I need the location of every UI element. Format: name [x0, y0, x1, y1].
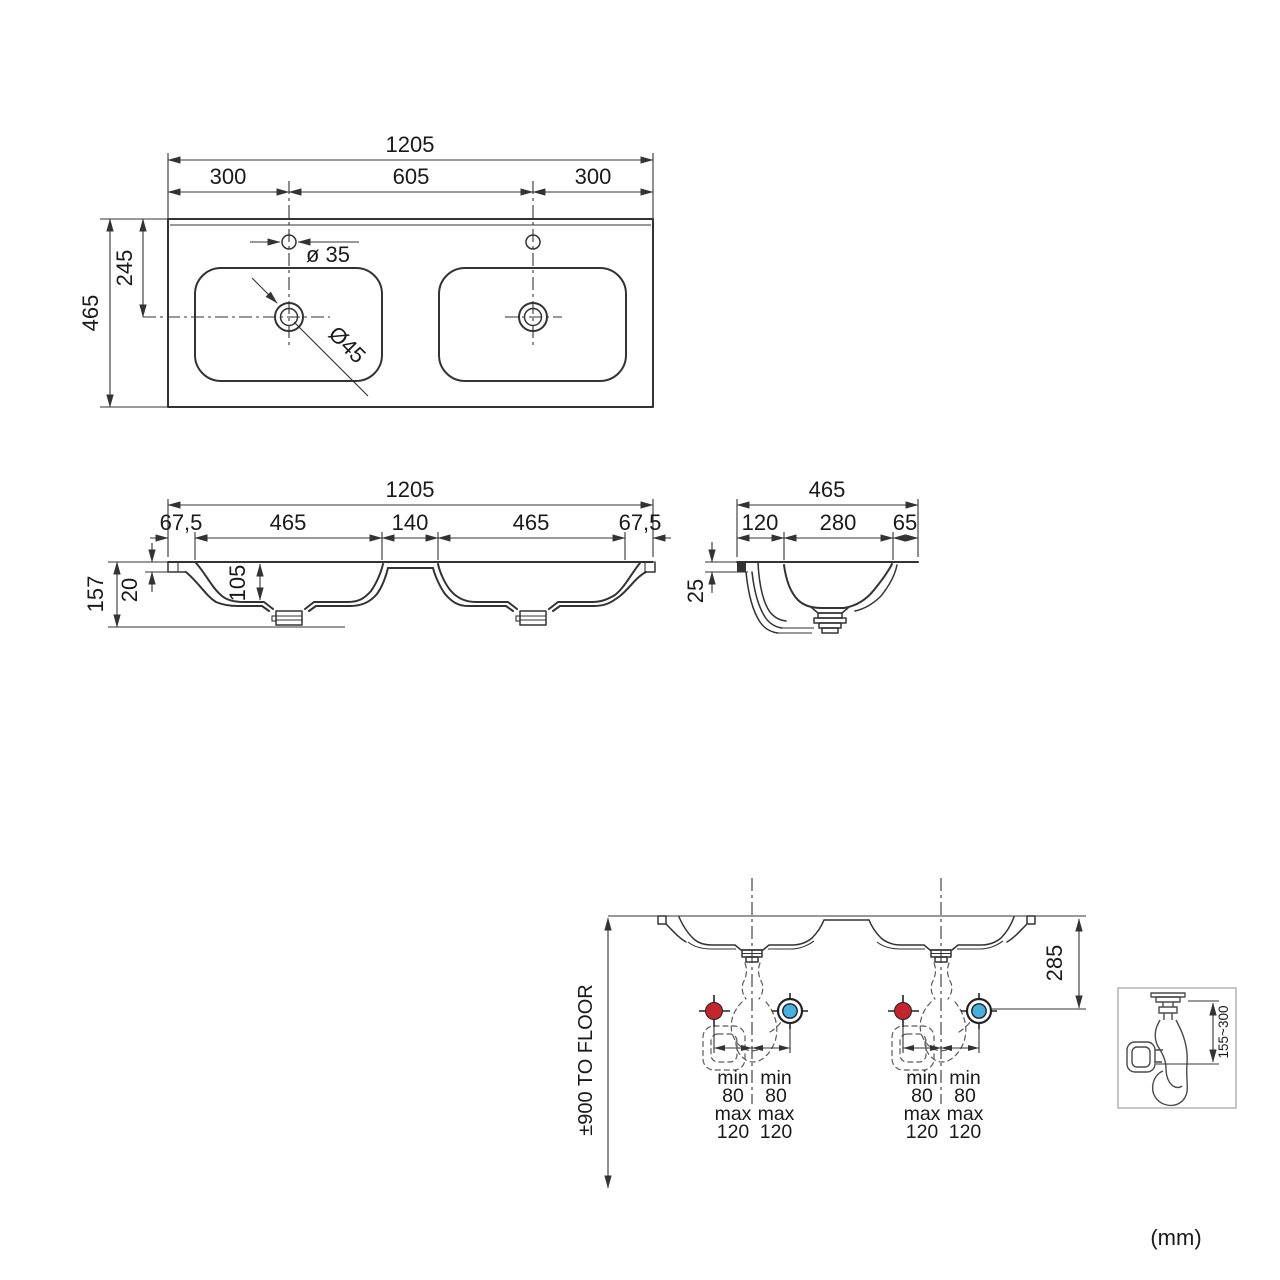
- right-basin-outer-shell-right: [553, 572, 646, 611]
- dim-hole-spacing: 605: [393, 164, 430, 189]
- technical-drawing-page: 1205 300 605 300 465 245 ø 35 Ø45 1205: [0, 0, 1280, 1280]
- dim-overall-depth: 465: [78, 295, 103, 332]
- right-trap-tailpiece-dashed: [931, 963, 935, 999]
- side-section-view: 465 120 280 65 25: [683, 477, 918, 633]
- units-note: (mm): [1150, 1225, 1201, 1250]
- installation-view: ±900 TO FLOOR: [575, 878, 1086, 1188]
- left-basin-outer-shell-right: [309, 568, 388, 611]
- trap-detail-box: 155~300: [1118, 988, 1236, 1108]
- front-right-drain-fitting: [516, 611, 546, 625]
- left-trap-tailpiece-dashed: [742, 963, 746, 999]
- front-section-view: 1205 67,5 465 140 465 67,5: [83, 477, 671, 627]
- countertop-outline: [168, 219, 653, 407]
- arrowhead: [779, 1045, 790, 1051]
- dim-drain-offset: 245: [112, 250, 137, 287]
- front-right-tab: [645, 562, 655, 572]
- max-value: 120: [949, 1121, 982, 1143]
- right-basin-installation: min 80 max 120 min 80 max 120: [888, 878, 997, 1143]
- front-left-tab: [168, 562, 186, 572]
- drain-dia-pointer: [252, 278, 277, 303]
- dim-floor-height-note: ±900 TO FLOOR: [575, 984, 597, 1135]
- dim-right-hole-offset: 300: [575, 164, 612, 189]
- right-basin-inner-surface-right: [549, 563, 640, 609]
- side-left-tab: [737, 562, 746, 572]
- side-basin-inner-back: [844, 564, 892, 608]
- dim-right-rim: 67,5: [619, 510, 662, 535]
- dim-countertop-thickness: 20: [117, 578, 142, 602]
- side-front-apron-mid: [752, 572, 782, 628]
- dim-trap-adjust-range: 155~300: [1216, 1006, 1231, 1059]
- right-basin-inner-surface: [438, 564, 517, 609]
- left-basin-supply-offset-labels: min 80 max 120 min 80 max 120: [715, 1067, 795, 1143]
- dim-left-hole-offset: 300: [210, 164, 247, 189]
- arrowhead: [903, 1045, 914, 1051]
- side-basin-inner-front: [784, 565, 844, 608]
- dim-side-overall-depth: 465: [809, 477, 846, 502]
- dim-basin-depth: 105: [225, 565, 250, 602]
- install-left-outer-wall: [666, 924, 686, 942]
- right-basin-outer-shell: [433, 568, 513, 611]
- dim-front-rim: 120: [742, 510, 779, 535]
- install-right-tab: [1027, 916, 1035, 924]
- dim-basin-opening: 280: [820, 510, 857, 535]
- top-plan-view: 1205 300 605 300 465 245 ø 35 Ø45: [78, 132, 653, 407]
- dim-overall-width: 1205: [386, 132, 435, 157]
- max-value: 120: [906, 1121, 939, 1143]
- install-left-tab: [658, 916, 666, 924]
- left-basin-inner-surface-right: [305, 564, 383, 609]
- dim-overall-height: 157: [83, 576, 108, 613]
- arrowhead: [968, 1045, 979, 1051]
- left-trap-tailpiece-dashed: [759, 963, 763, 999]
- left-basin-installation: min 80 max 120 min 80 max 120: [699, 878, 808, 1143]
- front-left-drain-fitting: [272, 611, 302, 625]
- dim-edge-thickness: 25: [683, 579, 708, 603]
- right-basin-supply-offset-labels: min 80 max 120 min 80 max 120: [904, 1067, 984, 1143]
- dim-center-divider: 140: [392, 510, 429, 535]
- dim-drain-drop: 285: [1042, 945, 1067, 982]
- max-value: 120: [717, 1121, 750, 1143]
- dim-left-basin-width: 465: [270, 510, 307, 535]
- dim-faucet-hole-diameter: ø 35: [306, 242, 350, 267]
- side-front-apron-outer: [746, 572, 778, 633]
- dim-back-rim: 65: [893, 510, 917, 535]
- right-trap-tailpiece-dashed: [948, 963, 952, 999]
- dim-drain-diameter: Ø45: [324, 321, 371, 368]
- dim-left-rim: 67,5: [160, 510, 203, 535]
- arrowhead: [714, 1045, 725, 1051]
- dim-right-basin-width: 465: [513, 510, 550, 535]
- dim-front-overall-width: 1205: [386, 477, 435, 502]
- washbasin-dimension-drawing: 1205 300 605 300 465 245 ø 35 Ø45 1205: [0, 0, 1280, 1280]
- max-value: 120: [760, 1121, 793, 1143]
- side-drain-fitting: [778, 608, 848, 633]
